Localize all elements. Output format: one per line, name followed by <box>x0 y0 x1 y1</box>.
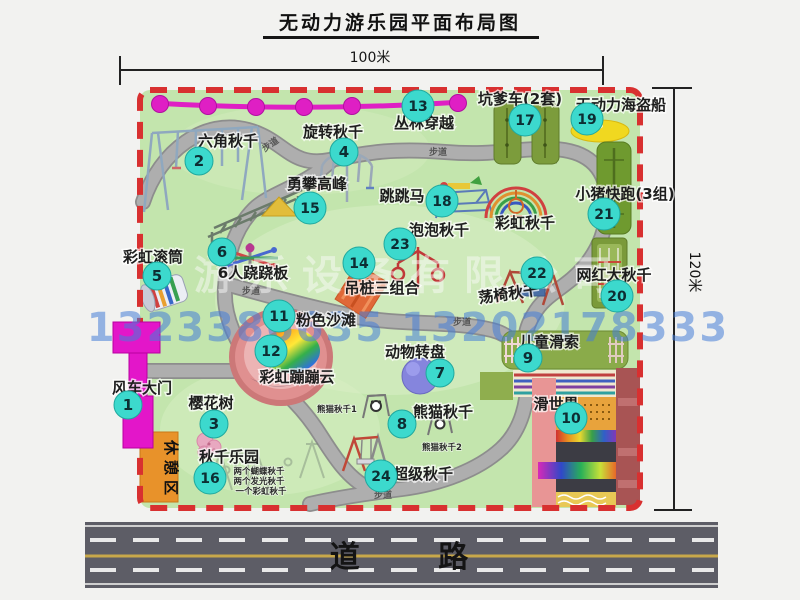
svg-text:6人跷跷板: 6人跷跷板 <box>218 264 289 282</box>
svg-text:彩虹蹦蹦云: 彩虹蹦蹦云 <box>258 368 334 386</box>
badge-20: 20 <box>601 280 633 312</box>
svg-text:17: 17 <box>515 113 534 129</box>
svg-text:15: 15 <box>300 201 319 217</box>
badge-15: 15 <box>294 192 326 224</box>
swing-note-3: 一个彩虹秋千 <box>235 486 287 497</box>
svg-text:23: 23 <box>390 237 409 253</box>
panda-swing-2-label: 熊猫秋千2 <box>422 442 462 453</box>
badge-3: 3 <box>200 410 228 438</box>
badge-10: 10 <box>555 402 587 434</box>
svg-text:步道: 步道 <box>429 146 447 158</box>
badge-11: 11 <box>263 300 295 332</box>
badge-22: 22 <box>521 257 553 289</box>
svg-text:吊桩三组合: 吊桩三组合 <box>344 279 420 297</box>
badge-24: 24 <box>365 460 397 492</box>
title-underline <box>263 36 539 39</box>
svg-text:3: 3 <box>209 415 219 433</box>
svg-text:小猪快跑(3组): 小猪快跑(3组) <box>575 185 674 203</box>
svg-text:13: 13 <box>408 99 427 115</box>
svg-text:泡泡秋千: 泡泡秋千 <box>409 221 469 239</box>
badge-6: 6 <box>208 238 236 266</box>
svg-text:16: 16 <box>200 471 219 487</box>
svg-text:14: 14 <box>349 256 369 272</box>
svg-text:18: 18 <box>432 194 451 210</box>
badge-9: 9 <box>514 344 542 372</box>
svg-text:熊猫秋千: 熊猫秋千 <box>413 403 473 421</box>
badge-16: 16 <box>194 462 226 494</box>
svg-text:10: 10 <box>561 411 581 427</box>
svg-text:21: 21 <box>594 207 613 223</box>
svg-text:24: 24 <box>371 469 391 485</box>
badge-4: 4 <box>330 138 358 166</box>
badge-1: 1 <box>114 391 142 419</box>
badge-21: 21 <box>588 198 620 230</box>
svg-text:粉色沙滩: 粉色沙滩 <box>296 311 356 329</box>
park-map-svg: 无动力游乐园平面布局图 100米 120米 步道 步道 步道 步道 步道 <box>0 0 800 600</box>
height-dimension-label: 120米 <box>686 252 702 293</box>
svg-text:旋转秋千: 旋转秋千 <box>302 123 363 141</box>
svg-text:6: 6 <box>217 243 227 261</box>
svg-text:4: 4 <box>339 143 349 161</box>
svg-text:2: 2 <box>194 152 204 170</box>
badge-2: 2 <box>185 147 213 175</box>
svg-text:9: 9 <box>523 349 533 367</box>
width-dimension-label: 100米 <box>350 50 391 66</box>
park-layout-diagram: 无动力游乐园平面布局图 100米 120米 步道 步道 步道 步道 步道 <box>0 0 800 600</box>
svg-text:19: 19 <box>577 112 596 128</box>
badge-12: 12 <box>255 335 287 367</box>
svg-text:超级秋千: 超级秋千 <box>392 465 453 483</box>
swing-note-2: 两个发光秋千 <box>233 476 285 487</box>
height-dimension <box>652 88 692 510</box>
road-label: 道 路 <box>330 540 502 575</box>
page-title: 无动力游乐园平面布局图 <box>279 11 521 34</box>
svg-text:动物转盘: 动物转盘 <box>385 343 445 361</box>
rest-area-label: 休憩区 <box>162 439 180 500</box>
panda-swing-1-label: 熊猫秋千1 <box>317 404 357 415</box>
badge-18: 18 <box>426 185 458 217</box>
svg-text:7: 7 <box>435 364 445 382</box>
svg-text:5: 5 <box>152 267 162 285</box>
rainbow-swing-label: 彩虹秋千 <box>494 214 555 232</box>
svg-text:勇攀高峰: 勇攀高峰 <box>287 175 348 193</box>
badge-19: 19 <box>571 103 603 135</box>
road: 道 路 <box>85 522 718 588</box>
svg-text:8: 8 <box>397 415 407 433</box>
svg-text:六角秋千: 六角秋千 <box>198 132 258 150</box>
svg-text:20: 20 <box>607 289 627 305</box>
badge-17: 17 <box>509 104 541 136</box>
badge-14: 14 <box>343 247 375 279</box>
swing-note-1: 两个蝴蝶秋千 <box>233 466 285 477</box>
badge-7: 7 <box>426 359 454 387</box>
svg-text:跳跳马: 跳跳马 <box>379 187 424 205</box>
svg-text:樱花树: 樱花树 <box>188 394 233 412</box>
svg-text:12: 12 <box>261 344 280 360</box>
badge-13: 13 <box>402 90 434 122</box>
badge-23: 23 <box>384 228 416 260</box>
badge-8: 8 <box>388 410 416 438</box>
svg-text:22: 22 <box>527 266 546 282</box>
svg-text:1: 1 <box>123 396 133 414</box>
svg-text:11: 11 <box>269 309 288 325</box>
badge-5: 5 <box>143 262 171 290</box>
